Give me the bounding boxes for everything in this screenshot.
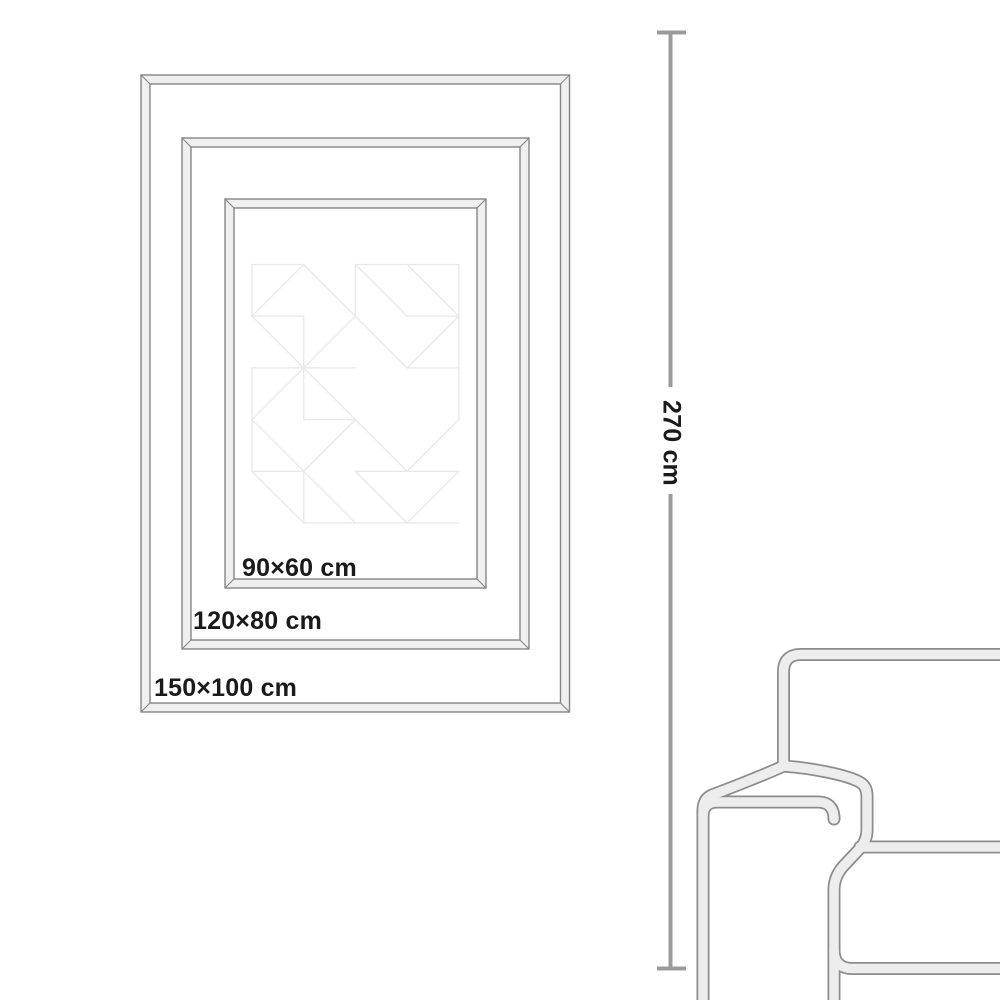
- frame-size-label-90x60: 90×60 cm: [242, 556, 357, 581]
- sofa-fill-strokes: [703, 655, 1000, 1000]
- height-dimension-label: 270 cm: [659, 400, 684, 486]
- poster-size-guide-illustration: 90×60 cm 120×80 cm 150×100 cm 270 cm: [0, 0, 1000, 1000]
- sofa-outline-strokes: [703, 655, 1000, 1000]
- size-guide-canvas: [0, 0, 1000, 1000]
- sofa-illustration: [703, 655, 1000, 1000]
- frame-size-label-120x80: 120×80 cm: [193, 609, 322, 634]
- frame-size-label-150x100: 150×100 cm: [154, 676, 297, 701]
- frame-90x60: [225, 199, 486, 588]
- height-dimension-line: [657, 33, 686, 969]
